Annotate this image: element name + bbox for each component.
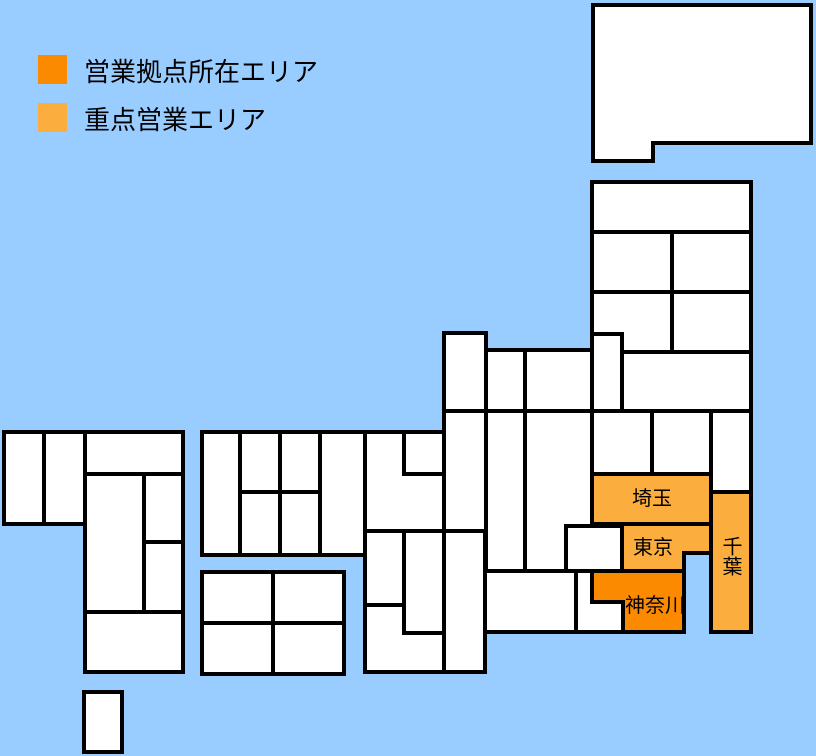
label-saitama: 埼玉 [632, 486, 672, 510]
map-cell [592, 411, 652, 474]
map-cell [592, 334, 622, 411]
map-cell [85, 432, 183, 474]
legend-swatch-office [38, 55, 67, 84]
map-cell [486, 350, 525, 411]
region-hokkaido [593, 5, 811, 161]
map-cell [365, 531, 404, 605]
map-cell [240, 492, 280, 555]
map-cell [525, 350, 592, 411]
japan-sales-area-map: 埼玉 東京 神奈川 千葉 営業拠点所在エリア 重点営業エリア [0, 0, 816, 756]
map-cell [486, 411, 525, 571]
map-cell [444, 411, 486, 531]
map-canvas: 埼玉 東京 神奈川 千葉 営業拠点所在エリア 重点営業エリア [0, 0, 816, 756]
map-cell [44, 432, 85, 524]
legend-swatch-priority [38, 103, 67, 132]
map-cell [622, 352, 751, 411]
map-cell [444, 333, 486, 411]
map-cell [280, 432, 320, 492]
map-cell [652, 411, 711, 474]
map-cell [240, 432, 280, 492]
label-tokyo: 東京 [633, 535, 673, 559]
map-cell [485, 571, 576, 632]
legend-label-priority: 重点営業エリア [84, 106, 266, 136]
map-cell [85, 612, 183, 672]
map-cell [202, 432, 240, 555]
map-cell [711, 411, 751, 492]
map-cell [566, 526, 622, 571]
map-cell [592, 232, 672, 292]
map-cell [144, 542, 183, 612]
map-cell [144, 474, 183, 542]
label-chiba: 千葉 [719, 536, 743, 576]
map-cell [404, 432, 444, 474]
map-cell [444, 531, 485, 672]
map-cell [320, 432, 365, 555]
map-cell [280, 492, 320, 555]
map-cell [592, 182, 751, 232]
map-cell [404, 531, 444, 633]
region-okinawa [84, 692, 122, 752]
label-kanagawa: 神奈川 [625, 593, 685, 617]
map-cell [672, 232, 751, 292]
map-cell [4, 432, 44, 524]
map-cell [202, 623, 273, 674]
map-cell [85, 474, 144, 612]
map-cell [273, 572, 344, 623]
map-cell [273, 623, 344, 674]
map-cell [202, 572, 273, 623]
legend-label-office: 営業拠点所在エリア [84, 58, 318, 88]
map-cell [672, 292, 751, 352]
